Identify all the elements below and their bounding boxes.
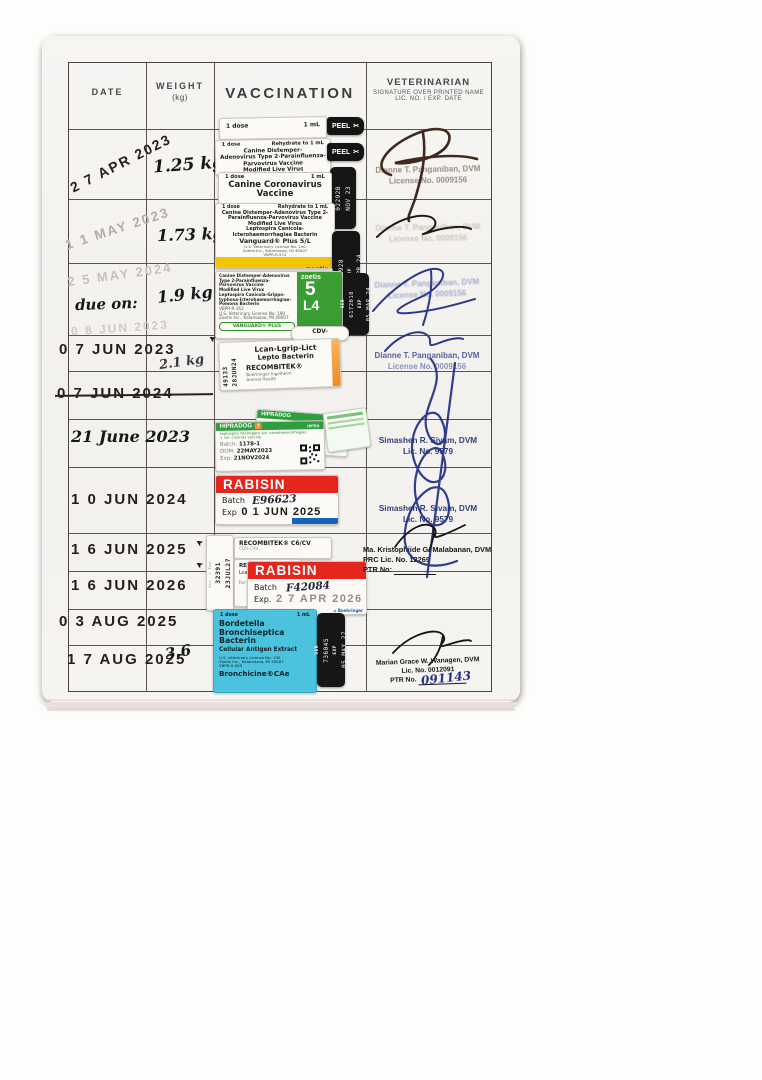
scissors-icon: ✂ xyxy=(353,122,359,130)
vanguard-plus-badge: VANGUARD® PLUS xyxy=(219,322,295,331)
vet-stamp-sivam: Simashen R. Sivam, DVM Lic. No. 9579 xyxy=(367,435,489,457)
recombitek-c6cv-sticker: RECOMBITEK® C6/CV CDV-CAV… xyxy=(234,537,332,559)
hipradog-sticker-edge xyxy=(322,407,371,453)
date-stamp: 1 6 JUN 2026 xyxy=(71,577,188,594)
zoetis-logo: zoetis xyxy=(306,265,329,269)
vaccination-record-page: DATE WEIGHT (kg) VACCINATION VETERINARIA… xyxy=(42,36,520,702)
zoetis-logo: zoetis xyxy=(297,272,342,281)
vet-stamp-malabanan: Ma. Kristophiide G. Malabanan, DVM PRC L… xyxy=(363,545,491,575)
rabisin-sticker: RABISIN Batch F42084 Exp. 2 7 APR 2026 ⌂… xyxy=(247,561,367,615)
recombitek-lepto-sticker: 49133 28JUN24 Lcan-Lgrip-Lict Lepto Bact… xyxy=(218,338,342,391)
boehringer-band xyxy=(292,518,338,524)
rabisin-sticker: RABISIN Batch E96623 Exp 0 1 JUN 2025 xyxy=(215,475,339,525)
page-bottom-shadow xyxy=(47,708,515,711)
column-header-vaccination: VACCINATION xyxy=(214,85,366,102)
arrow-mark-icon: ➤ xyxy=(194,558,206,570)
qr-code xyxy=(300,444,320,464)
vet-stamp-panganiban-faint: Dianne T. Panganiban, DVM License No. 00… xyxy=(367,222,489,246)
vanguard-plus5-sticker: 1 dose Rehydrate to 1 mL Canine Distempe… xyxy=(215,138,332,176)
coronavirus-vaccine-sticker: 1 dose 1 mL Canine Coronavirus Vaccine xyxy=(218,172,332,206)
column-header-date: DATE xyxy=(69,87,146,97)
column-header-veterinarian: VETERINARIAN SIGNATURE OVER PRINTED NAME… xyxy=(366,77,491,102)
vanguard-plus5L-sticker: 1 dose Rehydrate to 1 mL Canine Distempe… xyxy=(215,203,335,269)
vet-stamp-panganiban-blue-faint: Dianne T. Panganiban, DVM License No. 00… xyxy=(365,277,490,303)
hipra-logo: HIPRA xyxy=(307,423,320,428)
zoetis-band: zoetis xyxy=(216,257,334,268)
scanner-background: DATE WEIGHT (kg) VACCINATION VETERINARIA… xyxy=(0,0,762,1080)
weight-entry: 1.9 kg xyxy=(156,282,213,307)
hipradog-sticker: HIPRADOG 7 HIPRA Leptospira interrogans … xyxy=(215,420,326,472)
date-stamp: 1 6 JUN 2025 xyxy=(71,541,188,558)
column-header-weight: WEIGHT (kg) xyxy=(146,81,214,102)
scissors-icon: ✂ xyxy=(353,148,359,156)
date-stamp: 0 7 JUN 2023 xyxy=(59,341,176,358)
vet-stamp-sivam: Simashen R. Sivam, DVM Lic. No. 9579 xyxy=(367,503,489,525)
lot-exp-tab: SER 736045 EXP 05 MAY 27 xyxy=(317,613,345,687)
bronchicine-sticker: 1 dose 1 mL Bordetella Bronchiseptica Ba… xyxy=(213,609,317,693)
ser-exp-strip: Ser. / Exp. 32391 23JUL27 xyxy=(206,535,234,611)
date-stamp: 0 3 AUG 2025 xyxy=(59,613,178,630)
rabisin-banner: RABISIN xyxy=(248,562,366,579)
date-stamp-faint: 2 5 MAY 2024 xyxy=(66,260,173,290)
date-stamp: 1 0 JUN 2024 xyxy=(71,491,188,508)
peel-tab: PEEL ✂ xyxy=(327,117,364,135)
vet-stamp-panganiban-blue: Dianne T. Panganiban, DVM License No. 00… xyxy=(365,351,489,373)
vaccine-sticker-dose-strip: 1 dose 1 mL xyxy=(219,116,327,140)
weight-entry: 1.73 kg xyxy=(157,224,224,245)
grid-hline xyxy=(69,533,491,534)
peel-tab: PEEL ✂ xyxy=(327,143,364,161)
date-stamp: 1 1 MAY 2023 xyxy=(63,205,171,253)
due-on-note: due on: xyxy=(75,294,138,314)
ptr-blank-line xyxy=(394,567,436,575)
date-entry-handwritten: 21 June 2023 xyxy=(71,427,190,446)
rabisin-banner: RABISIN xyxy=(216,476,338,493)
arrow-mark-icon: ➤ xyxy=(194,536,206,548)
weight-entry: 3.6 xyxy=(164,641,193,663)
exp-date-stamp: 0 1 JUN 2025 xyxy=(241,506,321,518)
vet-stamp-panganiban: Dianne T. Panganiban, DVM License No. 00… xyxy=(367,164,489,188)
exp-date-stamp: 2 7 APR 2026 xyxy=(276,593,363,605)
vaccination-table: DATE WEIGHT (kg) VACCINATION VETERINARIA… xyxy=(68,62,492,692)
page-edge-tint xyxy=(46,699,516,701)
orange-edge xyxy=(331,339,341,386)
